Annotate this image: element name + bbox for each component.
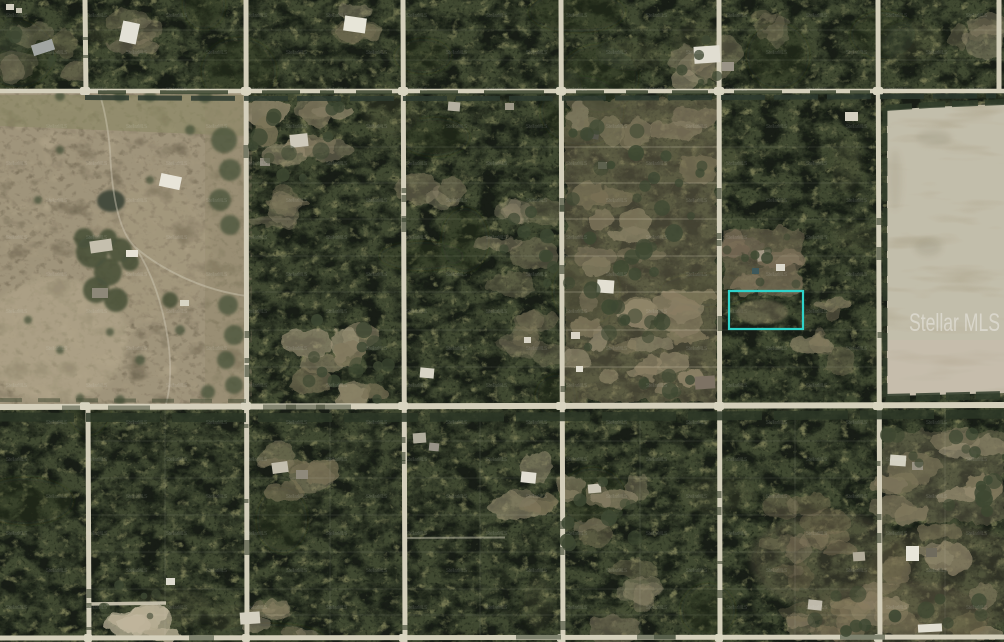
svg-text:Stellar MLS: Stellar MLS [909,309,1000,337]
